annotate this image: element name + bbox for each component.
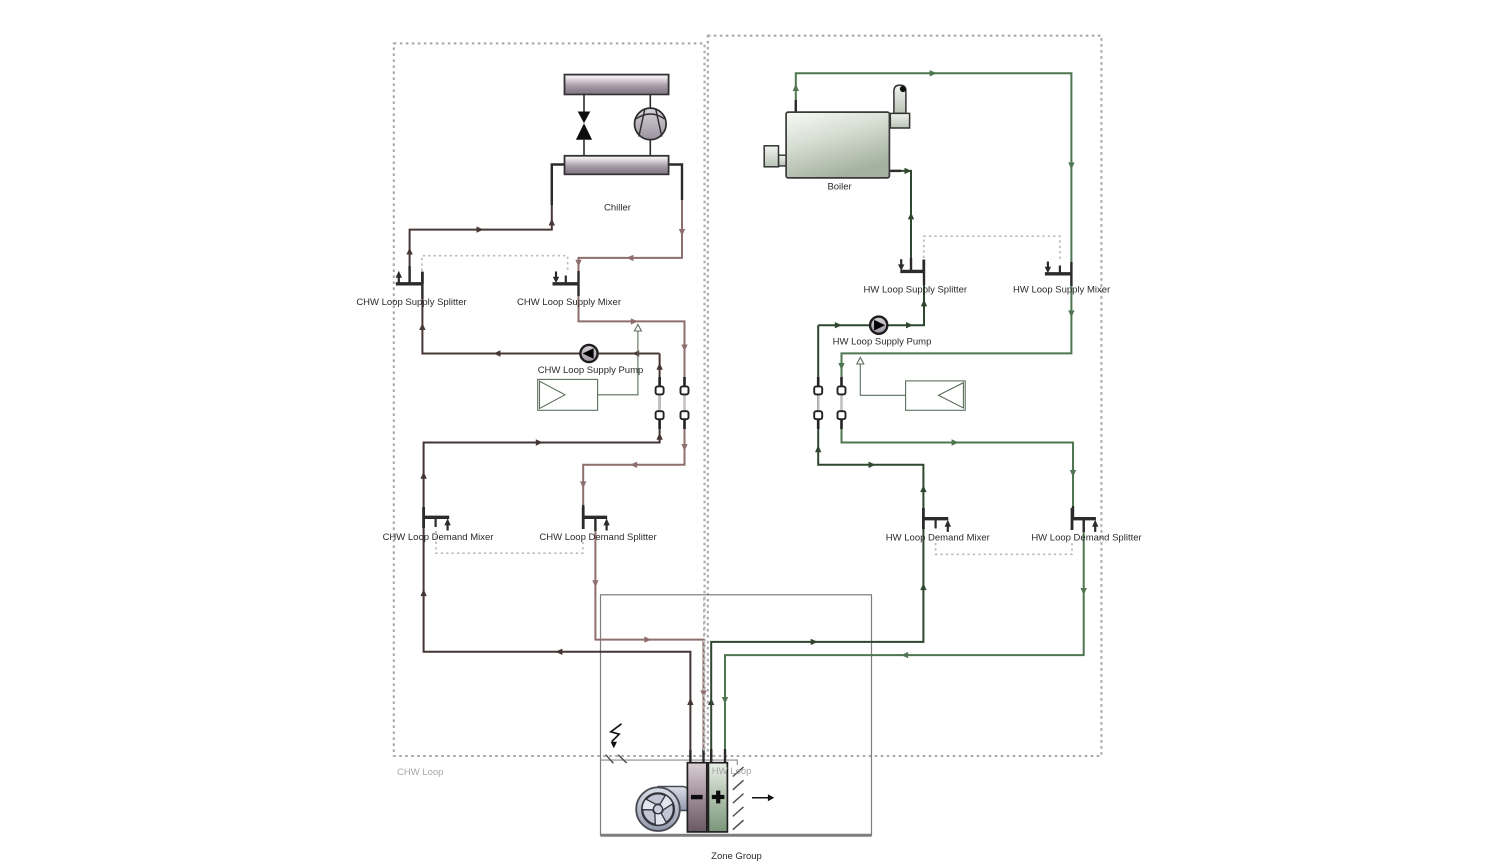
svg-text:Chiller: Chiller xyxy=(604,203,631,214)
svg-text:HW Loop Supply Pump: HW Loop Supply Pump xyxy=(833,337,932,348)
svg-text:Boiler: Boiler xyxy=(827,182,851,193)
svg-text:HW Loop Demand Mixer: HW Loop Demand Mixer xyxy=(886,533,990,544)
svg-text:HW Loop Supply Splitter: HW Loop Supply Splitter xyxy=(864,285,968,296)
svg-text:CHW Loop Supply Mixer: CHW Loop Supply Mixer xyxy=(517,297,621,308)
svg-text:HW Loop Supply Mixer: HW Loop Supply Mixer xyxy=(1013,285,1110,296)
svg-text:Zone Group: Zone Group xyxy=(711,851,762,862)
svg-text:CHW Loop Demand Splitter: CHW Loop Demand Splitter xyxy=(539,532,656,543)
svg-text:CHW Loop Supply Pump: CHW Loop Supply Pump xyxy=(538,365,644,376)
svg-text:HW Loop Demand Splitter: HW Loop Demand Splitter xyxy=(1031,533,1141,544)
svg-text:CHW Loop Supply Splitter: CHW Loop Supply Splitter xyxy=(356,297,466,308)
svg-text:CHW Loop Demand Mixer: CHW Loop Demand Mixer xyxy=(383,532,494,543)
svg-text:CHW Loop: CHW Loop xyxy=(397,767,443,778)
svg-text:HW Loop: HW Loop xyxy=(712,766,752,777)
